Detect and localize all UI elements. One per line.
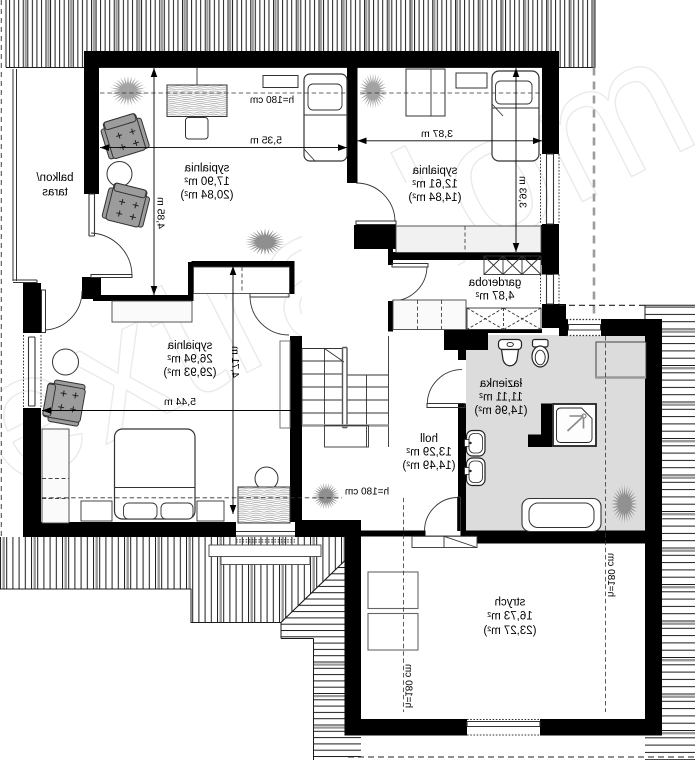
svg-text:h=180 cm: h=180 cm [250, 95, 294, 106]
svg-text:h=180 cm: h=180 cm [403, 664, 414, 708]
svg-text:holl: holl [420, 433, 438, 445]
svg-text:5,35 m: 5,35 m [250, 135, 282, 147]
svg-text:(14,96 m²): (14,96 m²) [474, 405, 527, 417]
svg-text:sypialnia: sypialnia [184, 163, 229, 175]
svg-text:16,73 m²: 16,73 m² [487, 611, 533, 623]
svg-text:strych: strych [495, 597, 526, 609]
svg-text:(14,84 m²): (14,84 m²) [408, 192, 461, 204]
svg-text:łazienka: łazienka [479, 378, 522, 390]
svg-text:h=180 cm: h=180 cm [605, 553, 616, 597]
svg-text:h=180 cm: h=180 cm [345, 487, 389, 498]
svg-text:4,71 m: 4,71 m [229, 346, 241, 378]
svg-text:balkon/: balkon/ [36, 172, 74, 184]
svg-text:3,93 m: 3,93 m [517, 176, 529, 208]
svg-text:(29,93 m²): (29,93 m²) [163, 367, 216, 379]
svg-text:taras: taras [42, 187, 68, 199]
svg-text:(23,27 m²): (23,27 m²) [483, 625, 536, 637]
svg-text:3,87 m: 3,87 m [421, 128, 453, 140]
svg-text:sypialnia: sypialnia [167, 340, 212, 352]
svg-text:4,85 m: 4,85 m [155, 197, 167, 229]
svg-text:4,87 m²: 4,87 m² [475, 291, 514, 303]
svg-text:(14,49 m²): (14,49 m²) [402, 460, 455, 472]
svg-text:11,11 m²: 11,11 m² [479, 392, 523, 404]
svg-text:sypialnia: sypialnia [412, 165, 457, 177]
svg-text:5,44 m: 5,44 m [164, 396, 196, 408]
svg-text:12,61 m²: 12,61 m² [412, 179, 458, 191]
svg-text:17,90 m²: 17,90 m² [184, 176, 230, 188]
svg-text:(20,84 m²): (20,84 m²) [180, 190, 233, 202]
svg-text:garderoba: garderoba [468, 277, 521, 289]
svg-text:26,94 m²: 26,94 m² [167, 354, 213, 366]
svg-text:13,29 m²: 13,29 m² [406, 447, 452, 459]
